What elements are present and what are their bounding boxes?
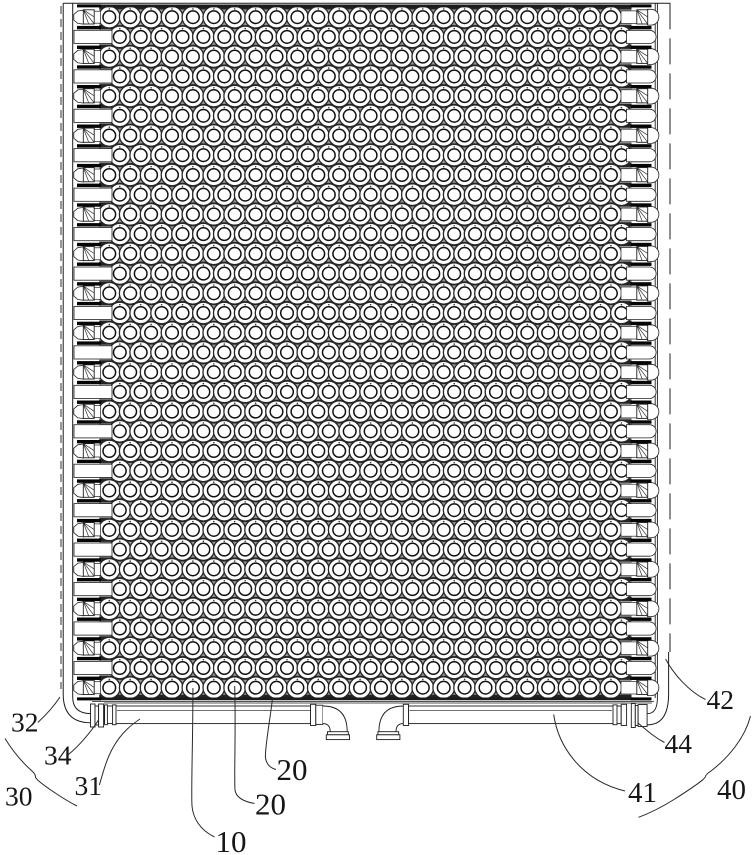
svg-text:44: 44	[665, 728, 693, 759]
svg-text:42: 42	[707, 684, 735, 715]
svg-text:20: 20	[255, 787, 286, 822]
svg-text:32: 32	[11, 707, 39, 738]
svg-text:30: 30	[5, 781, 33, 812]
svg-text:31: 31	[75, 770, 103, 801]
svg-text:20: 20	[277, 752, 308, 787]
svg-text:41: 41	[628, 777, 657, 809]
svg-text:10: 10	[216, 824, 247, 855]
svg-text:34: 34	[44, 740, 72, 771]
svg-text:40: 40	[717, 774, 746, 806]
